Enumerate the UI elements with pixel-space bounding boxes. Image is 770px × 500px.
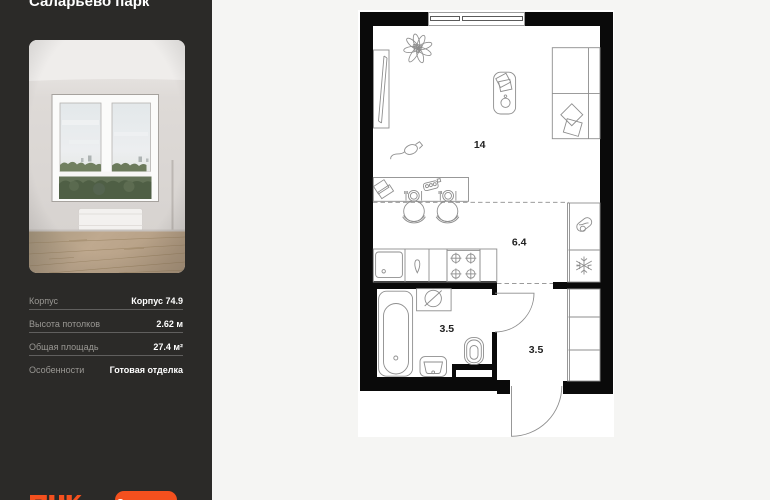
svg-text:14: 14 [474, 139, 486, 151]
svg-text:6.4: 6.4 [512, 236, 527, 248]
svg-text:3.5: 3.5 [439, 323, 454, 335]
svg-text:3.5: 3.5 [529, 344, 544, 356]
